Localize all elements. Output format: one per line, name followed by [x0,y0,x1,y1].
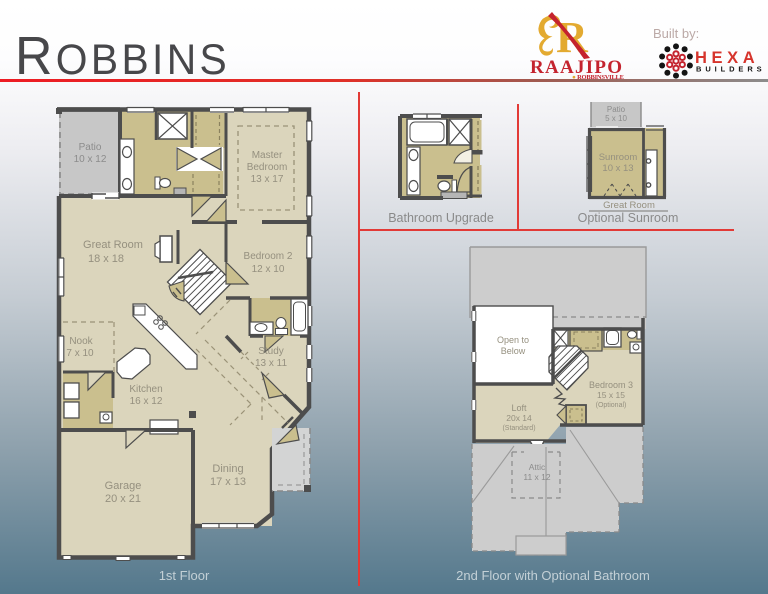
svg-text:18 x 18: 18 x 18 [88,253,124,265]
svg-text:Dining: Dining [212,463,243,475]
svg-text:Great Room: Great Room [83,239,143,251]
svg-text:17 x 13: 17 x 13 [210,476,246,488]
svg-text:Bedroom 2: Bedroom 2 [244,251,293,262]
svg-text:Open to: Open to [497,335,529,345]
svg-text:20x 14: 20x 14 [506,413,532,423]
svg-text:Bathroom Upgrade: Bathroom Upgrade [388,211,494,225]
svg-text:5 x 10: 5 x 10 [605,114,627,123]
svg-text:Optional Sunroom: Optional Sunroom [578,211,679,225]
svg-text:11 x 12: 11 x 12 [523,472,551,482]
svg-text:(Standard): (Standard) [502,425,535,432]
svg-text:Sunroom: Sunroom [599,152,638,163]
svg-text:13 x 17: 13 x 17 [251,174,284,185]
svg-text:Great Room: Great Room [603,200,655,211]
svg-text:16 x 12: 16 x 12 [130,396,163,407]
svg-text:Garage: Garage [105,480,142,492]
svg-text:12 x 10: 12 x 10 [252,264,285,275]
svg-text:Bedroom: Bedroom [247,162,288,173]
svg-text:Bedroom 3: Bedroom 3 [589,380,633,390]
svg-text:Patio: Patio [607,105,626,114]
svg-text:13 x 11: 13 x 11 [255,358,287,369]
svg-text:10 x 12: 10 x 12 [74,154,107,165]
svg-text:Study: Study [258,346,284,357]
svg-text:15 x 15: 15 x 15 [597,390,625,400]
svg-text:Kitchen: Kitchen [129,384,162,395]
svg-text:(Optional): (Optional) [596,402,627,409]
svg-text:10 x 13: 10 x 13 [602,163,633,174]
svg-text:Loft: Loft [511,403,527,413]
svg-text:Master: Master [252,150,283,161]
svg-text:Patio: Patio [79,142,102,153]
svg-text:20 x 21: 20 x 21 [105,493,141,505]
svg-text:7 x 10: 7 x 10 [66,348,94,359]
svg-text:Nook: Nook [69,336,93,347]
svg-text:Attic: Attic [529,462,546,472]
svg-text:Below: Below [501,346,526,356]
